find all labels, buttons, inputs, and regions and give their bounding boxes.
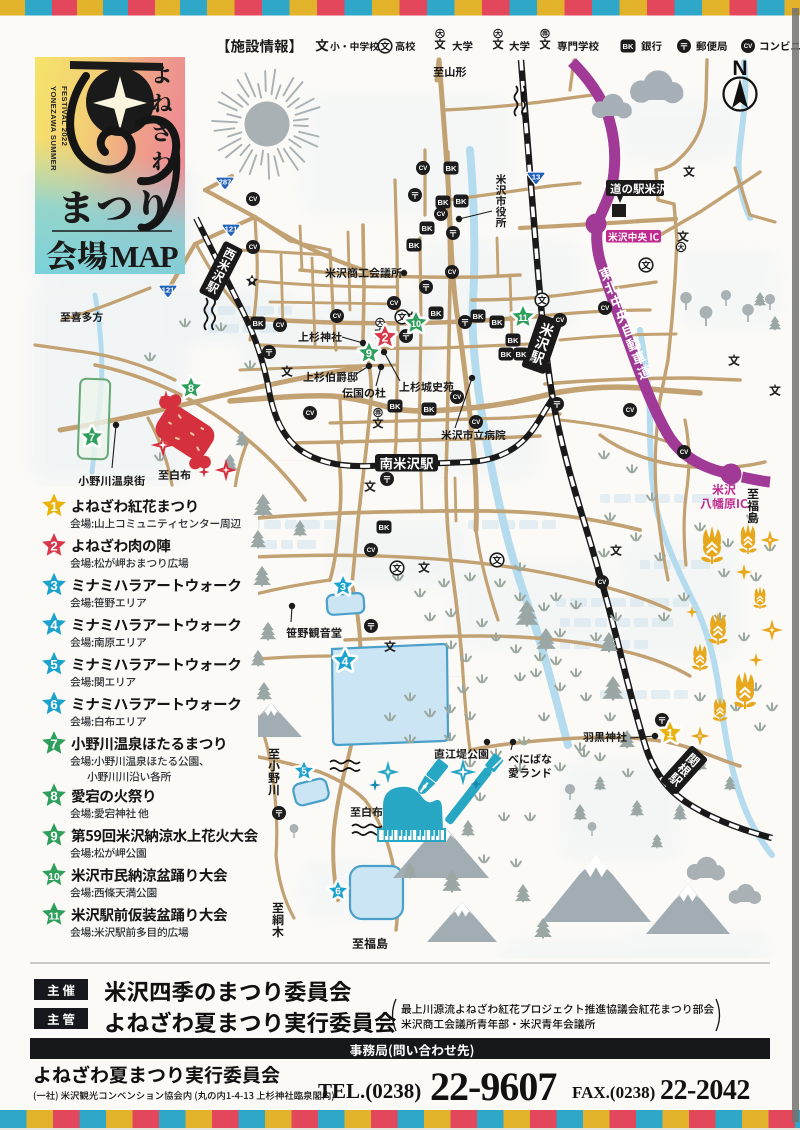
svg-text:FAX.(0238): FAX.(0238) [572,1083,655,1102]
svg-text:CV: CV [249,196,258,203]
svg-text:CV: CV [472,419,481,426]
svg-text:3: 3 [50,578,57,593]
svg-text:BK: BK [424,405,435,414]
svg-text:BK: BK [438,198,449,207]
svg-text:6: 6 [50,697,57,712]
svg-text:BK: BK [473,312,484,321]
svg-text:BK: BK [409,241,420,250]
svg-text:BK: BK [501,350,512,359]
svg-text:BK: BK [253,319,264,328]
svg-text:BK: BK [390,402,401,411]
svg-text:BK: BK [446,164,457,173]
svg-text:CV: CV [276,322,285,329]
svg-text:11: 11 [49,911,60,922]
svg-text:1: 1 [50,499,57,514]
svg-text:CV: CV [556,317,565,324]
svg-text:MAP: MAP [110,239,179,274]
svg-text:10: 10 [48,872,60,883]
svg-text:CV: CV [306,410,315,417]
svg-text:4: 4 [342,654,349,668]
svg-text:BK: BK [623,42,634,51]
svg-text:287: 287 [219,178,232,187]
svg-text:9: 9 [366,348,372,360]
svg-text:BK: BK [379,523,390,532]
svg-text:13: 13 [532,173,540,182]
svg-text:8: 8 [50,789,57,804]
svg-text:4: 4 [50,618,58,633]
svg-text:5: 5 [301,767,307,778]
svg-text:9: 9 [50,828,57,843]
svg-text:121: 121 [162,286,175,295]
svg-text:1: 1 [667,726,674,740]
svg-text:YONEZAWA SUMMER: YONEZAWA SUMMER [49,86,58,171]
svg-text:CV: CV [626,407,635,414]
svg-text:CV: CV [598,579,607,586]
svg-text:CV: CV [390,300,399,307]
svg-text:BK: BK [456,197,467,206]
svg-text:CV: CV [437,211,446,218]
svg-text:CV: CV [744,43,753,50]
svg-text:8: 8 [188,383,194,395]
svg-text:CV: CV [680,449,689,456]
svg-text:CV: CV [448,269,457,276]
svg-text:CV: CV [419,165,428,172]
svg-text:CV: CV [333,313,342,320]
svg-text:BK: BK [492,318,503,327]
svg-text:2: 2 [50,538,57,553]
svg-text:CV: CV [367,547,376,554]
svg-text:11: 11 [518,313,528,323]
svg-text:BK: BK [431,309,442,318]
svg-text:7: 7 [89,432,95,444]
svg-text:CV: CV [601,305,610,312]
svg-text:TEL.(0238): TEL.(0238) [318,1079,421,1103]
svg-text:7: 7 [50,736,57,751]
svg-text:5: 5 [50,657,57,672]
svg-text:22-2042: 22-2042 [660,1075,750,1106]
svg-text:N: N [732,57,747,80]
svg-text:BK: BK [422,224,433,233]
svg-text:121: 121 [225,225,238,234]
svg-text:22-9607: 22-9607 [430,1064,557,1109]
svg-text:6: 6 [335,887,341,898]
svg-text:CV: CV [249,244,258,251]
svg-text:10: 10 [411,319,421,329]
svg-text:3: 3 [340,581,346,593]
svg-text:2: 2 [382,330,389,344]
svg-text:BK: BK [508,336,519,345]
svg-text:BK: BK [516,350,527,359]
svg-text:CV: CV [453,394,462,401]
